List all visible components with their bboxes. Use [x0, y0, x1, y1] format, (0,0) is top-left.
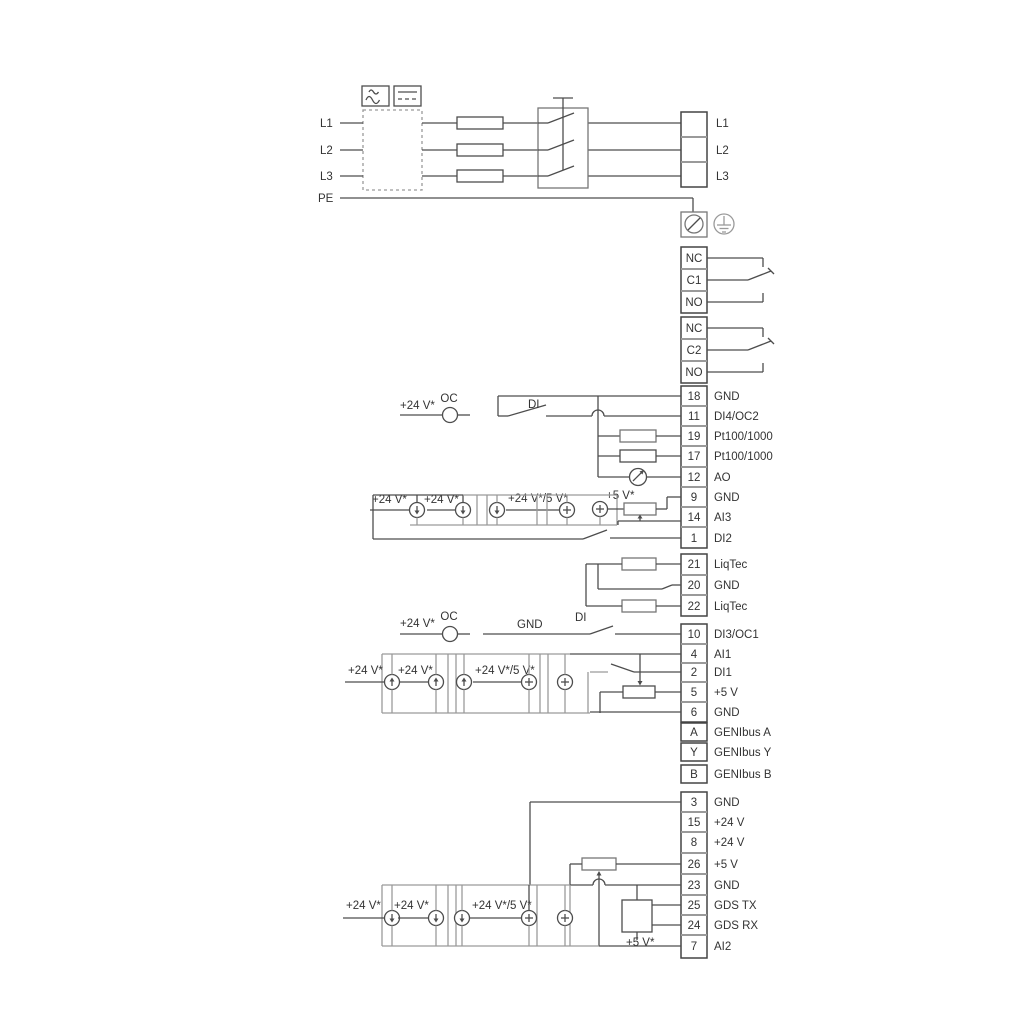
fuse-l1: [457, 117, 503, 129]
terminal-a: A: [690, 727, 698, 739]
relay2-c2-label: C2: [687, 345, 702, 357]
terminal-4: 4: [691, 649, 698, 661]
terminal-14: 14: [688, 512, 701, 524]
io2-wiring: +24 V* OC GND DI +24 V*: [345, 611, 681, 713]
terminal-l3-label: L3: [716, 171, 729, 183]
terminal-19: 19: [688, 431, 701, 443]
terminal-22-label: LiqTec: [714, 601, 747, 613]
mains-section: L1 L2 L3 PE: [318, 86, 734, 237]
terminal-14-label: AI3: [714, 512, 731, 524]
terminal-11: 11: [688, 411, 700, 423]
io-block-2: 10 DI3/OC1 4 AI1 2 DI1 5 +5 V 6 GND: [681, 624, 759, 722]
terminal-21: 21: [688, 559, 701, 571]
mains-l1-label: L1: [320, 118, 333, 130]
io-block-3: 3 GND 15 +24 V 8 +24 V 26 +5 V 23 GND 25…: [681, 792, 758, 958]
terminal-17: 17: [688, 451, 701, 463]
terminal-19-label: Pt100/1000: [714, 431, 773, 443]
dc-symbol-box: [394, 86, 421, 106]
terminal-12-label: AO: [714, 472, 731, 484]
potentiometer-3: [582, 858, 616, 870]
terminal-7-label: AI2: [714, 941, 731, 953]
oc-source-circle-2: [443, 627, 458, 642]
wiring-diagram: L1 L2 L3 PE: [0, 0, 1024, 1024]
v24-label-2: +24 V*: [372, 494, 407, 506]
v5-label-1: +5 V*: [606, 490, 635, 502]
pt100-resistor-2: [620, 450, 656, 462]
terminal-10-label: DI3/OC1: [714, 629, 759, 641]
terminal-15-label: +24 V: [714, 817, 745, 829]
potentiometer-2: [623, 686, 655, 698]
wiper-arrow-3: [597, 871, 602, 876]
oc-source-circle-1: [443, 408, 458, 423]
relay1-no-label: NO: [685, 297, 702, 309]
terminal-17-label: Pt100/1000: [714, 451, 773, 463]
terminal-25-label: GDS TX: [714, 900, 757, 912]
terminal-20: 20: [688, 580, 701, 592]
gds-sensor-box: [622, 900, 652, 932]
terminal-23: 23: [688, 880, 701, 892]
v24-label-8: +24 V*: [394, 900, 429, 912]
terminal-9-label: GND: [714, 492, 740, 504]
terminal-1: 1: [691, 533, 697, 545]
v24-label-4: +24 V*: [400, 618, 435, 630]
v24-label-7: +24 V*: [346, 900, 381, 912]
filter-box: [363, 110, 422, 190]
terminal-24-label: GDS RX: [714, 920, 758, 932]
ao-meter-icon: [630, 469, 647, 486]
io1-wiring: +24 V* OC DI +24 V* +24: [370, 393, 681, 539]
liqtec-sensor-1: [622, 558, 656, 570]
mains-terminal-block: L1 L2 L3: [681, 112, 729, 187]
v24-label-1: +24 V*: [400, 400, 435, 412]
di-label-2: DI: [575, 612, 587, 624]
potentiometer-1: [624, 503, 656, 515]
pt100-resistor-1: [620, 430, 656, 442]
relay2-nc-label: NC: [686, 323, 703, 335]
terminal-2-label: DI1: [714, 667, 732, 679]
relay1-block: NC C1 NO: [681, 247, 774, 313]
terminal-9: 9: [691, 492, 697, 504]
terminal-26-label: +5 V: [714, 859, 738, 871]
relay-section: NC C1 NO NC C2 NO: [681, 247, 774, 383]
terminal-11-label: DI4/OC2: [714, 411, 759, 423]
relay2-block: NC C2 NO: [681, 317, 774, 383]
mains-l2-label: L2: [320, 145, 333, 157]
terminal-18: 18: [688, 391, 701, 403]
terminal-4-label: AI1: [714, 649, 731, 661]
mains-l3-label: L3: [320, 171, 333, 183]
gnd-label-1: GND: [517, 619, 543, 631]
terminal-20-label: GND: [714, 580, 740, 592]
v5-label-2: +5 V*: [626, 937, 655, 949]
v24v5-label-3: +24 V*/5 V*: [472, 900, 532, 912]
terminal-y: Y: [690, 747, 698, 759]
wiper-arrow-2: [638, 681, 643, 686]
terminal-10: 10: [688, 629, 701, 641]
terminal-1-label: DI2: [714, 533, 732, 545]
terminal-8-label: +24 V: [714, 837, 745, 849]
relay1-c1-label: C1: [687, 275, 702, 287]
terminal-5: 5: [691, 687, 697, 699]
oc-label-1: OC: [440, 393, 457, 405]
terminal-l1-label: L1: [716, 118, 729, 130]
terminal-a-label: GENIbus A: [714, 727, 771, 739]
terminal-8: 8: [691, 837, 697, 849]
terminal-15: 15: [688, 817, 701, 829]
v24-label-3: +24 V*: [424, 494, 459, 506]
fuse-l2: [457, 144, 503, 156]
terminal-3-label: GND: [714, 797, 740, 809]
terminal-2: 2: [691, 667, 697, 679]
relay1-nc-label: NC: [686, 253, 703, 265]
pe-earth: [340, 198, 734, 237]
relay1-contact-blade: [748, 271, 771, 280]
di1-switch-blade: [611, 664, 634, 672]
genibus-block: A GENIbus A Y GENIbus Y B GENIbus B: [681, 723, 772, 783]
terminal-5-label: +5 V: [714, 687, 738, 699]
terminal-b-label: GENIbus B: [714, 769, 772, 781]
terminal-22: 22: [688, 601, 701, 613]
di-switch-blade-1: [508, 405, 546, 416]
oc-label-2: OC: [440, 611, 457, 623]
v24-label-6: +24 V*: [398, 665, 433, 677]
io-block-1: 18 GND 11 DI4/OC2 19 Pt100/1000 17 Pt100…: [681, 386, 773, 548]
sensor-options-1: +24 V* +24 V* +24 V*/5 V* +5 V*: [370, 490, 681, 539]
terminal-23-label: GND: [714, 880, 740, 892]
terminal-25: 25: [688, 900, 701, 912]
terminal-6-label: GND: [714, 707, 740, 719]
terminal-6: 6: [691, 707, 697, 719]
di-label-1: DI: [528, 399, 540, 411]
v24-label-5: +24 V*: [348, 665, 383, 677]
fuse-l3: [457, 170, 503, 182]
phase-wires: [340, 123, 681, 176]
terminal-3: 3: [691, 797, 697, 809]
io3-wiring: +5 V* +24 V* +24 V* +24 V*/5 V*: [343, 802, 681, 949]
terminal-24: 24: [688, 920, 701, 932]
terminal-12: 12: [688, 472, 701, 484]
liqtec-wiring: [586, 558, 681, 612]
terminal-y-label: GENIbus Y: [714, 747, 772, 759]
relay2-no-label: NO: [685, 367, 702, 379]
di2-switch-blade: [583, 530, 607, 539]
main-switch: [538, 98, 588, 188]
terminal-26: 26: [688, 859, 701, 871]
di-switch-blade-2: [590, 626, 613, 634]
terminal-b: B: [690, 769, 698, 781]
liqtec-sensor-2: [622, 600, 656, 612]
liqtec-block: 21 LiqTec 20 GND 22 LiqTec: [586, 554, 747, 616]
terminal-18-label: GND: [714, 391, 740, 403]
terminal-7: 7: [691, 941, 697, 953]
terminal-l2-label: L2: [716, 145, 729, 157]
terminal-21-label: LiqTec: [714, 559, 747, 571]
relay2-contact-blade: [748, 341, 771, 350]
mains-pe-label: PE: [318, 193, 334, 205]
